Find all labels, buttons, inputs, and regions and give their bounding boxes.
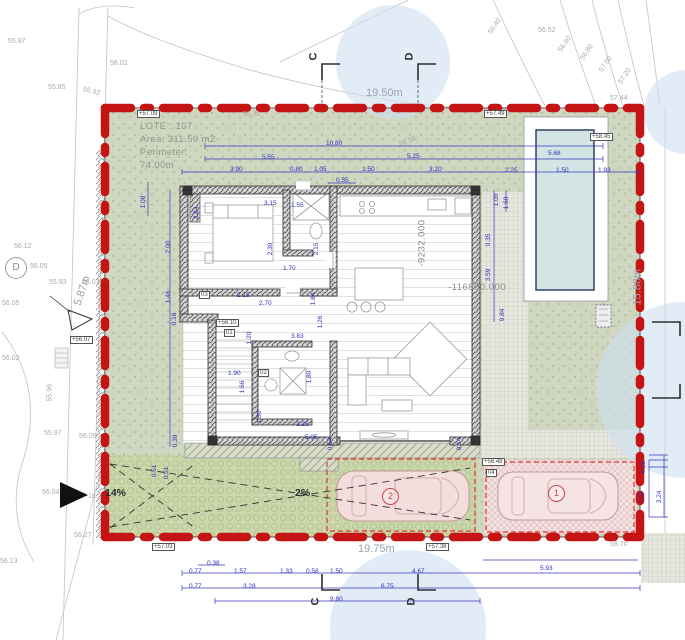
dimension-label: 1.08 <box>141 196 148 209</box>
spot-elevation-label: 56.05 <box>2 300 20 307</box>
dimension-label: 0.51 <box>152 465 159 478</box>
dimension-width-bottom: 19.75m <box>358 544 395 555</box>
dimension-label: 1.30 <box>257 411 264 424</box>
dimension-label: 6.75 <box>381 584 394 591</box>
car-spot-2 <box>337 471 469 521</box>
dimension-label: 1.50 <box>330 569 343 576</box>
lot-perimeter-value: 74.00m <box>140 161 174 171</box>
dimension-label: 3.28 <box>243 584 256 591</box>
spot-elevation-label: 56.52 <box>538 27 556 34</box>
spot-elevation-label: 56.02 <box>2 355 20 362</box>
spot-elevation-label: 56.12 <box>14 243 32 250</box>
lot-perimeter-label: Perimeter: <box>140 148 188 158</box>
dimension-label: 3.24 <box>657 491 664 504</box>
spot-elevation-label: 55.85 <box>48 84 66 91</box>
dimension-label: 1.05 <box>314 167 327 174</box>
dimension-label: 0.58 <box>306 569 319 576</box>
dimension-label: 1.20 <box>247 332 254 345</box>
section-label-d-bottom: D <box>407 598 418 606</box>
dimension-label: 5.55 <box>262 155 275 162</box>
dimension-label: 0.30 <box>173 435 180 448</box>
dimension-label: 3.20 <box>429 167 442 174</box>
dimension-label: 8.14 <box>457 438 464 451</box>
level-box-label: +57.09 <box>137 110 160 118</box>
door-tag-label: 01 <box>224 329 235 337</box>
section-label-c-bottom: C <box>311 598 322 606</box>
grid-coordinate-horizontal: -116800.000 <box>448 283 506 293</box>
lot-title: LOTE : 107 <box>140 122 193 132</box>
dimension-label: 5.68 <box>548 151 561 158</box>
dimension-label: 1.26 <box>318 316 325 329</box>
dimension-label: 0.54 <box>328 438 335 451</box>
level-box-label: +57.49 <box>484 110 507 118</box>
dimension-label: 5.05 <box>305 435 318 442</box>
dimension-label: 3.83 <box>291 334 304 341</box>
dimension-label: 3.59 <box>486 269 493 282</box>
spot-elevation-label: 56.07 <box>82 279 100 286</box>
dimension-label: 0.35 <box>486 234 493 247</box>
dimension-label: 0.25 <box>641 461 648 474</box>
level-box-label: +56.07 <box>70 336 93 344</box>
dimension-label: 2.99 <box>639 491 646 504</box>
spot-elevation-label: 56.31 <box>243 111 261 118</box>
dimension-label: 0.55 <box>336 178 349 185</box>
level-box-label: +56.10 <box>216 319 239 327</box>
dimension-label: 2.30 <box>268 243 275 256</box>
dimension-label: 0.77 <box>189 569 202 576</box>
dimension-label: 1.50 <box>556 168 569 175</box>
dimension-label: 1.00 <box>494 194 501 207</box>
dimension-label: 5.93 <box>540 566 553 573</box>
grid-coordinate-vertical: -9232.000 <box>417 219 427 266</box>
plan-drawing <box>0 0 685 640</box>
dimension-label: 1.93 <box>598 168 611 175</box>
dimension-label: 1.70 <box>283 266 296 273</box>
slope-label-center: 2% <box>295 488 310 499</box>
dimension-label: 1.60 <box>504 197 511 210</box>
spot-elevation-label: 58.02 <box>110 60 128 67</box>
spot-elevation-label: 57.44 <box>610 95 628 102</box>
dimension-label: 1.46 <box>166 291 173 304</box>
dimension-label: 0.16 <box>172 313 179 326</box>
dimension-label: 3.90 <box>230 167 243 174</box>
level-box-label: +57.03 <box>152 543 175 551</box>
level-box-label: +57.38 <box>426 543 449 551</box>
dimension-label: 1.55 <box>291 203 304 210</box>
dimension-label: 10.80 <box>326 141 342 148</box>
slope-label-left: 14% <box>105 488 126 499</box>
dimension-label: 1.80 <box>307 371 314 384</box>
door-tag-label: 03 <box>199 291 210 299</box>
dimension-label: 0.77 <box>189 584 202 591</box>
spot-elevation-label: 56.09 <box>79 433 97 440</box>
section-label-c-top: C <box>309 53 320 61</box>
dimension-label: 3.25 <box>296 422 309 429</box>
spot-elevation-label: 56.05 <box>30 263 48 270</box>
dimension-label: 5.25 <box>407 154 420 161</box>
parking-number-1: 1 <box>548 485 565 502</box>
parking-number-2: 2 <box>382 488 399 505</box>
dimension-label: 1.50 <box>362 167 375 174</box>
spot-elevation-label: 55.96 <box>47 384 54 402</box>
door-tag-label: 02 <box>258 369 269 377</box>
spot-elevation-label: 56.04 <box>42 489 60 496</box>
dimension-label: 1.84 <box>311 293 318 306</box>
grid-marker-d-circle: D <box>5 257 27 279</box>
dimension-label: 0.51 <box>164 467 171 480</box>
spot-elevation-label: 58.70 <box>610 541 628 548</box>
spot-elevation-label: 55.87 <box>8 38 26 45</box>
spot-elevation-label: 55.97 <box>44 430 62 437</box>
spot-elevation-label: 56.13 <box>0 558 18 565</box>
spot-elevation-label: 55.93 <box>49 279 67 286</box>
dimension-label: 1.90 <box>228 371 241 378</box>
dimension-label: 2.15 <box>237 293 250 300</box>
level-box-label: +56.48 <box>482 458 505 466</box>
dimension-label: 2.25 <box>505 168 518 175</box>
dimension-label: 3.84 <box>194 207 201 220</box>
dimension-label: 2.00 <box>166 241 173 254</box>
dimension-width-top: 19.50m <box>366 88 403 99</box>
dimension-label: 1.66 <box>240 381 247 394</box>
dimension-label: 3.15 <box>264 201 277 208</box>
dimension-label: 1.33 <box>280 569 293 576</box>
spot-elevation-label: 18 <box>88 493 96 500</box>
dimension-label: 1.57 <box>234 569 247 576</box>
dimension-label: 0.38 <box>207 561 220 568</box>
dimension-label: 9.84 <box>500 309 507 322</box>
door-tag-label: 04 <box>486 469 497 477</box>
section-label-d-top: D <box>405 53 416 61</box>
level-box-label: +58.45 <box>590 133 613 141</box>
spot-elevation-label: 56.27 <box>74 532 92 539</box>
dimension-label: 2.70 <box>259 301 272 308</box>
dimension-label: 9.80 <box>330 597 343 604</box>
dimension-label: 2.15 <box>314 243 321 256</box>
lot-area: Area: 311.50 m2 <box>140 135 216 145</box>
pool <box>524 117 611 327</box>
dimension-side-right: 15.88m <box>633 269 644 306</box>
dimension-label: 0.80 <box>290 167 303 174</box>
dimension-label: 4.67 <box>412 569 425 576</box>
site-plan-canvas: LOTE : 107 Area: 311.50 m2 Perimeter: 74… <box>0 0 685 640</box>
